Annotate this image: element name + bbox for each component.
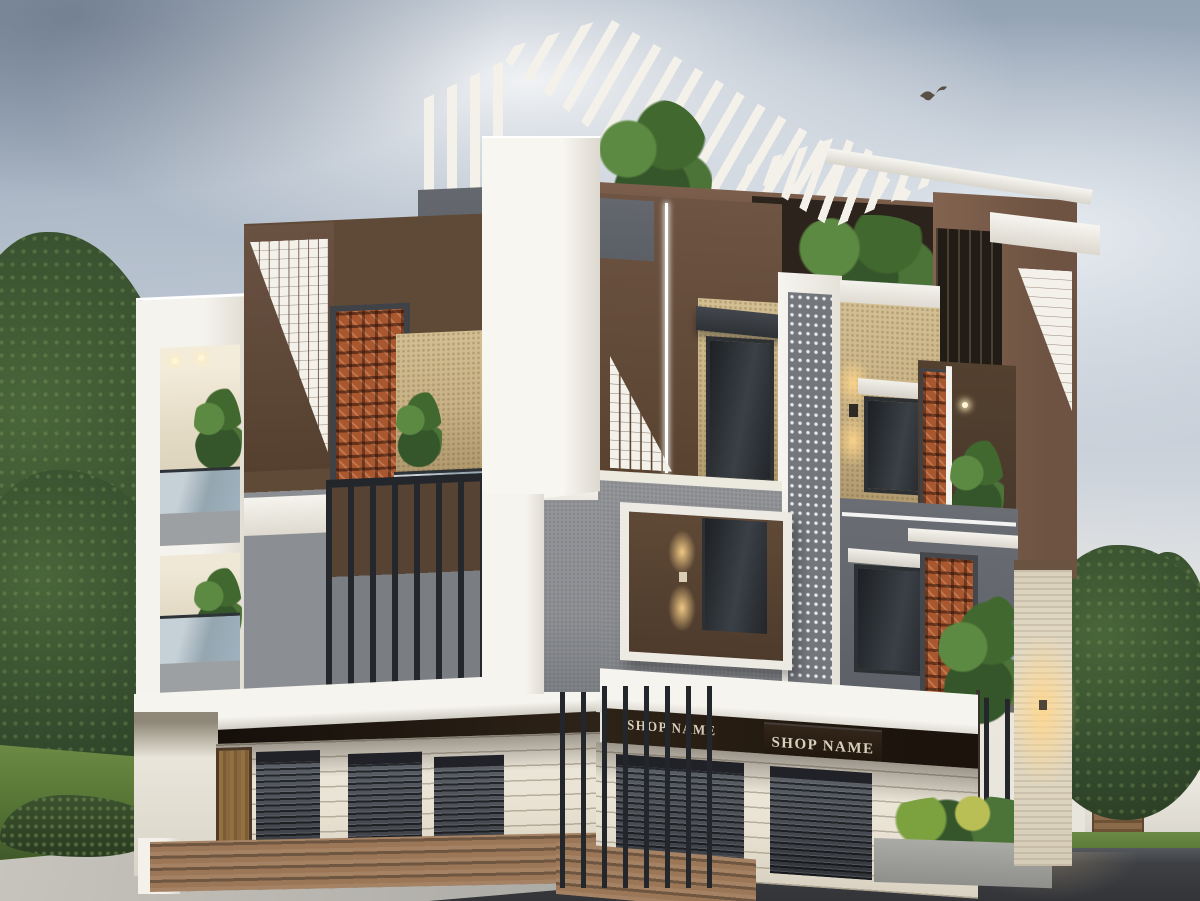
feature-window-1f [702,518,767,634]
feature-glow-up [668,530,696,574]
wall-sconce [849,404,858,417]
white-pillar-base [482,494,544,694]
shop-shutter-right-2 [770,766,872,880]
architectural-render: SHOP NAME SHOP NAME [0,0,1200,901]
front-window-2f [706,336,774,484]
steps-left [150,832,610,892]
corner-concrete-wall [544,500,600,692]
stone-column-glow [1008,630,1078,790]
column-wall-light [1039,700,1047,710]
balcony-parapet-upper [160,511,240,546]
downlight [172,358,178,364]
terrace-plant-left [396,390,442,476]
white-pillar [482,136,600,506]
corner-pergola-posts [560,686,722,888]
light-strip [665,203,668,473]
feature-sconce [679,572,687,582]
feature-glow-down [668,584,696,632]
front-header-box [600,198,654,261]
downlight [198,355,204,361]
louvre-screen-left [326,473,492,704]
bird-icon [916,80,952,106]
downlight [962,402,968,408]
perforated-screen [788,292,832,687]
